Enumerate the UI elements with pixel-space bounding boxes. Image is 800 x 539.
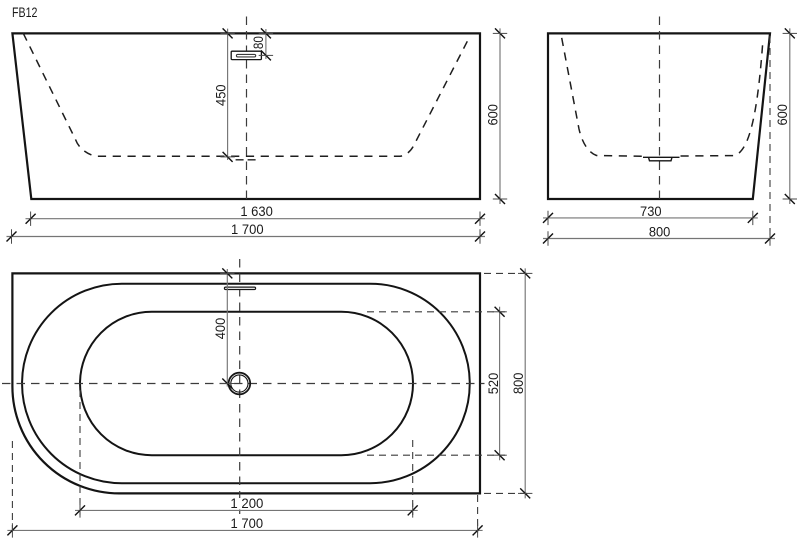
- svg-text:1 200: 1 200: [230, 495, 263, 511]
- svg-text:600: 600: [484, 104, 500, 126]
- svg-text:600: 600: [774, 104, 790, 126]
- svg-text:400: 400: [212, 318, 228, 340]
- svg-text:800: 800: [649, 223, 671, 239]
- svg-text:FB12: FB12: [12, 4, 38, 20]
- svg-text:520: 520: [485, 373, 501, 395]
- svg-text:450: 450: [212, 84, 228, 106]
- svg-text:80: 80: [250, 36, 266, 49]
- svg-text:730: 730: [640, 203, 662, 219]
- svg-text:1 630: 1 630: [240, 203, 273, 219]
- svg-text:1 700: 1 700: [231, 515, 264, 531]
- svg-text:800: 800: [510, 372, 526, 394]
- svg-text:1 700: 1 700: [231, 221, 264, 237]
